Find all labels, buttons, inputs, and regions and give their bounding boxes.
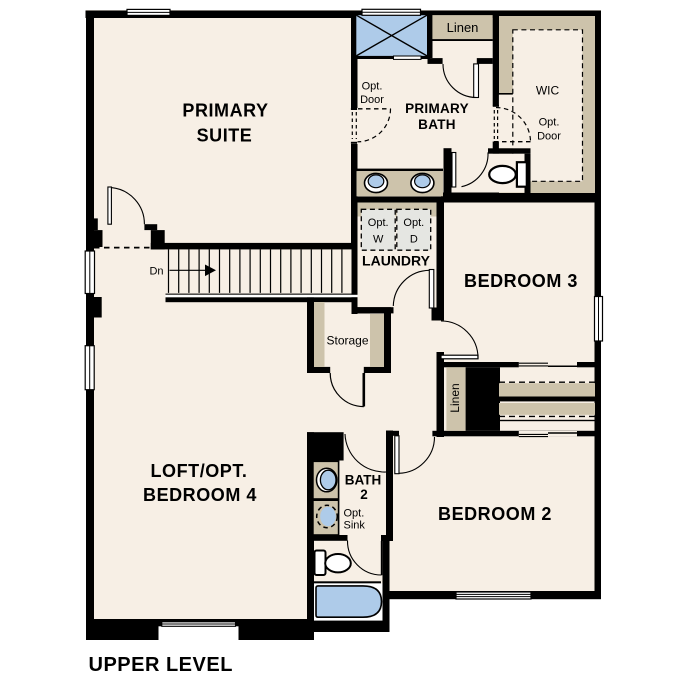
- svg-text:PRIMARY: PRIMARY: [182, 101, 268, 121]
- svg-text:Storage: Storage: [326, 333, 368, 347]
- svg-text:LOFT/OPT.: LOFT/OPT.: [151, 461, 248, 481]
- svg-text:Opt.: Opt.: [539, 117, 560, 129]
- svg-text:PRIMARY: PRIMARY: [405, 101, 469, 116]
- svg-text:2: 2: [360, 487, 368, 502]
- svg-text:Opt.: Opt.: [368, 217, 389, 229]
- svg-text:BEDROOM 3: BEDROOM 3: [464, 271, 578, 291]
- svg-text:LAUNDRY: LAUNDRY: [362, 252, 431, 268]
- svg-text:Opt.: Opt.: [344, 508, 365, 520]
- svg-text:Opt.: Opt.: [362, 81, 383, 93]
- svg-text:BEDROOM 2: BEDROOM 2: [438, 504, 552, 524]
- svg-text:UPPER LEVEL: UPPER LEVEL: [89, 654, 233, 676]
- svg-text:Door: Door: [537, 131, 561, 143]
- svg-text:D: D: [410, 234, 418, 246]
- svg-text:Dn: Dn: [149, 265, 163, 277]
- svg-text:Linen: Linen: [448, 383, 462, 412]
- svg-text:Door: Door: [360, 94, 384, 106]
- svg-text:SUITE: SUITE: [197, 126, 253, 146]
- svg-text:BATH: BATH: [418, 117, 456, 132]
- svg-text:Sink: Sink: [344, 520, 366, 532]
- svg-text:BEDROOM 4: BEDROOM 4: [143, 485, 257, 505]
- svg-text:BATH: BATH: [345, 473, 382, 488]
- svg-text:WIC: WIC: [536, 83, 560, 97]
- svg-text:W: W: [373, 234, 384, 246]
- svg-text:Linen: Linen: [447, 20, 479, 35]
- svg-text:Opt.: Opt.: [403, 217, 424, 229]
